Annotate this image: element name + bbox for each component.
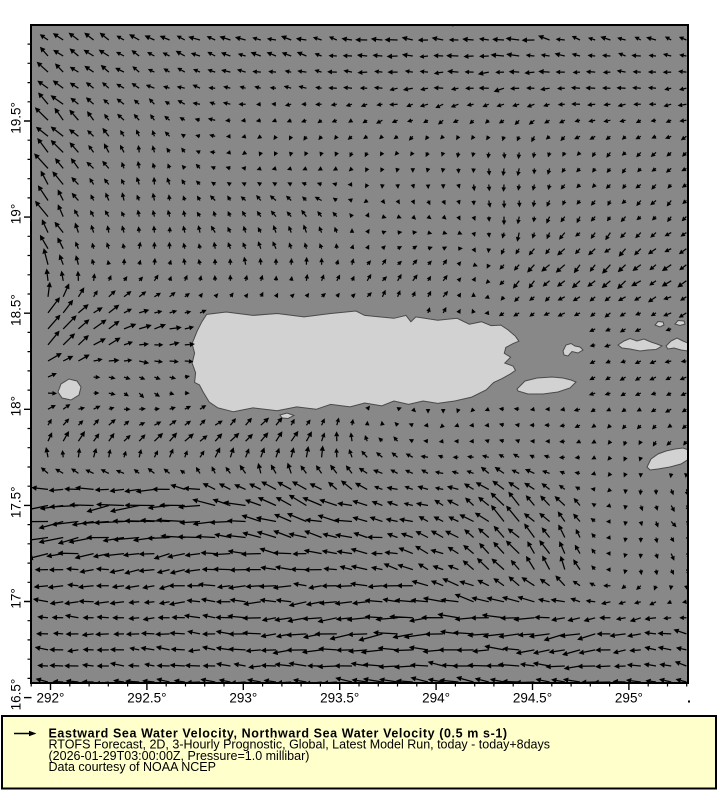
svg-text:19°: 19°	[9, 204, 24, 224]
svg-text:295°: 295°	[615, 691, 643, 706]
svg-text:17.5°: 17.5°	[9, 486, 24, 518]
svg-text:294.5°: 294.5°	[513, 691, 552, 706]
svg-text:Data courtesy of NOAA NCEP: Data courtesy of NOAA NCEP	[49, 760, 216, 774]
svg-text:294°: 294°	[422, 691, 450, 706]
svg-text:293°: 293°	[229, 691, 257, 706]
svg-text:292°: 292°	[37, 691, 65, 706]
svg-text:17°: 17°	[9, 588, 24, 608]
svg-text:292.5°: 292.5°	[127, 691, 166, 706]
svg-text:293.5°: 293.5°	[320, 691, 359, 706]
svg-text:18.5°: 18.5°	[9, 294, 24, 326]
svg-text:16.5°: 16.5°	[9, 679, 24, 711]
svg-text:19.5°: 19.5°	[9, 102, 24, 134]
svg-text:18°: 18°	[9, 396, 24, 416]
